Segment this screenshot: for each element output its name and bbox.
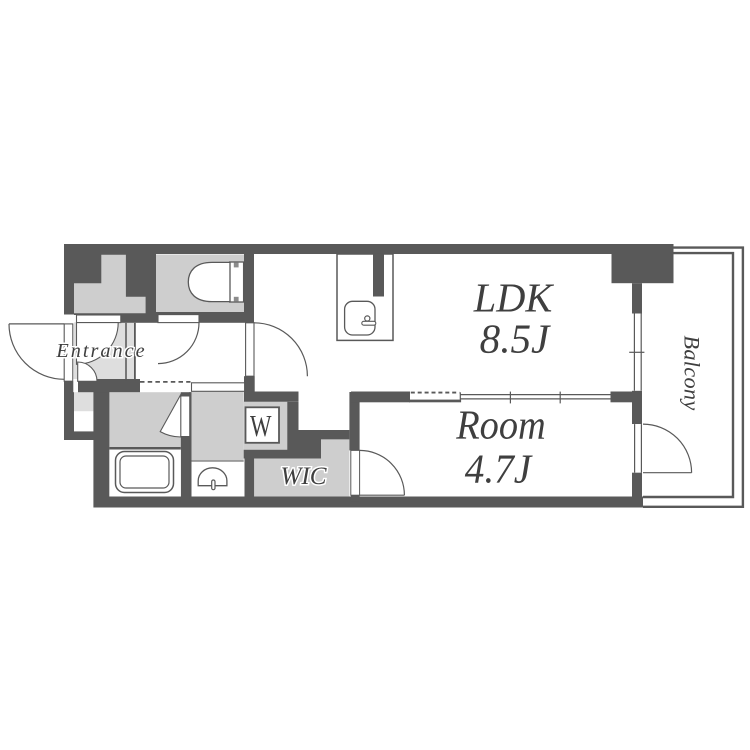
svg-text:W: W [250,408,272,443]
svg-text:4.7J: 4.7J [465,446,533,492]
svg-text:WIC: WIC [281,463,327,490]
svg-text:Balcony: Balcony [679,335,704,410]
svg-text:Room: Room [455,402,546,448]
svg-text:8.5J: 8.5J [480,316,551,362]
svg-text:Entrance: Entrance [55,340,146,362]
svg-text:LDK: LDK [473,275,555,321]
